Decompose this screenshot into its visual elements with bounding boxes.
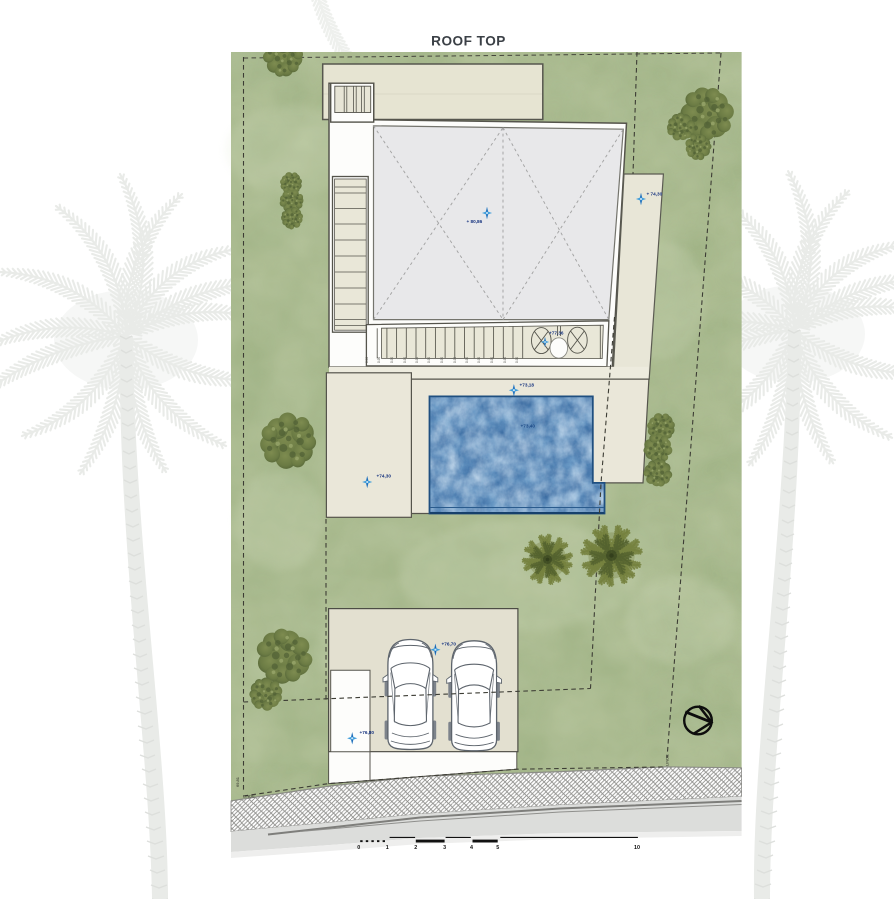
svg-text:+76,70: +76,70 <box>442 642 457 647</box>
svg-text:0.90: 0.90 <box>377 357 381 363</box>
svg-text:0.90: 0.90 <box>453 357 457 363</box>
svg-text:5: 5 <box>496 845 499 851</box>
svg-text:3: 3 <box>443 845 446 851</box>
svg-text:0.90: 0.90 <box>465 357 469 363</box>
svg-text:0: 0 <box>357 845 360 851</box>
svg-text:4: 4 <box>470 845 473 851</box>
svg-text:2: 2 <box>414 845 417 851</box>
svg-text:0.90: 0.90 <box>490 357 494 363</box>
svg-text:0.90: 0.90 <box>403 357 407 363</box>
svg-text:LINDE: LINDE <box>243 794 255 799</box>
svg-text:0.90: 0.90 <box>440 357 444 363</box>
svg-text:0.90: 0.90 <box>415 357 419 363</box>
svg-text:+77,36: +77,36 <box>549 331 564 336</box>
svg-text:+ 74,30: + 74,30 <box>647 192 663 197</box>
svg-text:0.90: 0.90 <box>427 357 431 363</box>
svg-text:+73,18: +73,18 <box>520 383 535 388</box>
svg-text:+ 80,86: + 80,86 <box>467 219 483 224</box>
svg-text:+73,40: +73,40 <box>521 424 536 429</box>
svg-text:10: 10 <box>634 845 640 851</box>
svg-text:LINDE: LINDE <box>665 754 670 766</box>
svg-text:69.81: 69.81 <box>235 776 240 787</box>
svg-text:0.90: 0.90 <box>390 357 394 363</box>
svg-text:1: 1 <box>386 845 389 851</box>
svg-text:+76,80: +76,80 <box>360 730 375 735</box>
svg-text:0.90: 0.90 <box>365 357 369 363</box>
svg-text:0.90: 0.90 <box>477 357 481 363</box>
svg-text:0.90: 0.90 <box>515 357 519 363</box>
svg-text:ROOF TOP: ROOF TOP <box>431 34 506 49</box>
svg-text:+74,30: +74,30 <box>377 474 392 479</box>
svg-text:0.90: 0.90 <box>503 357 507 363</box>
